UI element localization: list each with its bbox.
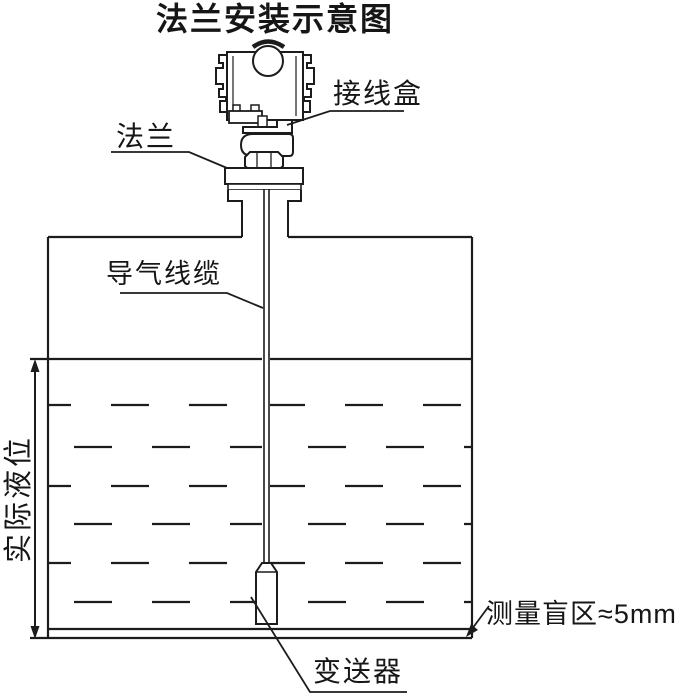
arrowhead-up xyxy=(31,359,40,372)
diagram-title: 法兰安装示意图 xyxy=(156,2,394,37)
conduit-block xyxy=(229,111,262,123)
flange-plate xyxy=(225,168,303,184)
junction-box-label: 接线盒 xyxy=(333,79,423,110)
air-cable-label: 导气线缆 xyxy=(106,260,222,290)
actual-level-label: 实际液位 xyxy=(4,424,38,574)
junction-box-leader xyxy=(287,111,404,125)
cable-lines xyxy=(262,189,270,564)
transmitter-head xyxy=(216,42,314,172)
housing-right-ear xyxy=(303,55,314,112)
flange-installation-diagram: 法兰安装示意图 接线盒 法兰 导气线缆 实际液位 测量盲区≈5mm 变送器 xyxy=(0,0,700,700)
housing-left-ear xyxy=(216,55,227,112)
transmitter-label: 变送器 xyxy=(313,657,403,688)
air-cable-leader xyxy=(120,293,263,308)
flange-label: 法兰 xyxy=(116,122,176,153)
blind-zone-label: 测量盲区≈5mm xyxy=(486,600,677,630)
probe-shape xyxy=(256,563,277,624)
top-cap-circle xyxy=(253,46,283,76)
flange-leader xyxy=(111,152,227,168)
tank-outline xyxy=(30,237,472,638)
